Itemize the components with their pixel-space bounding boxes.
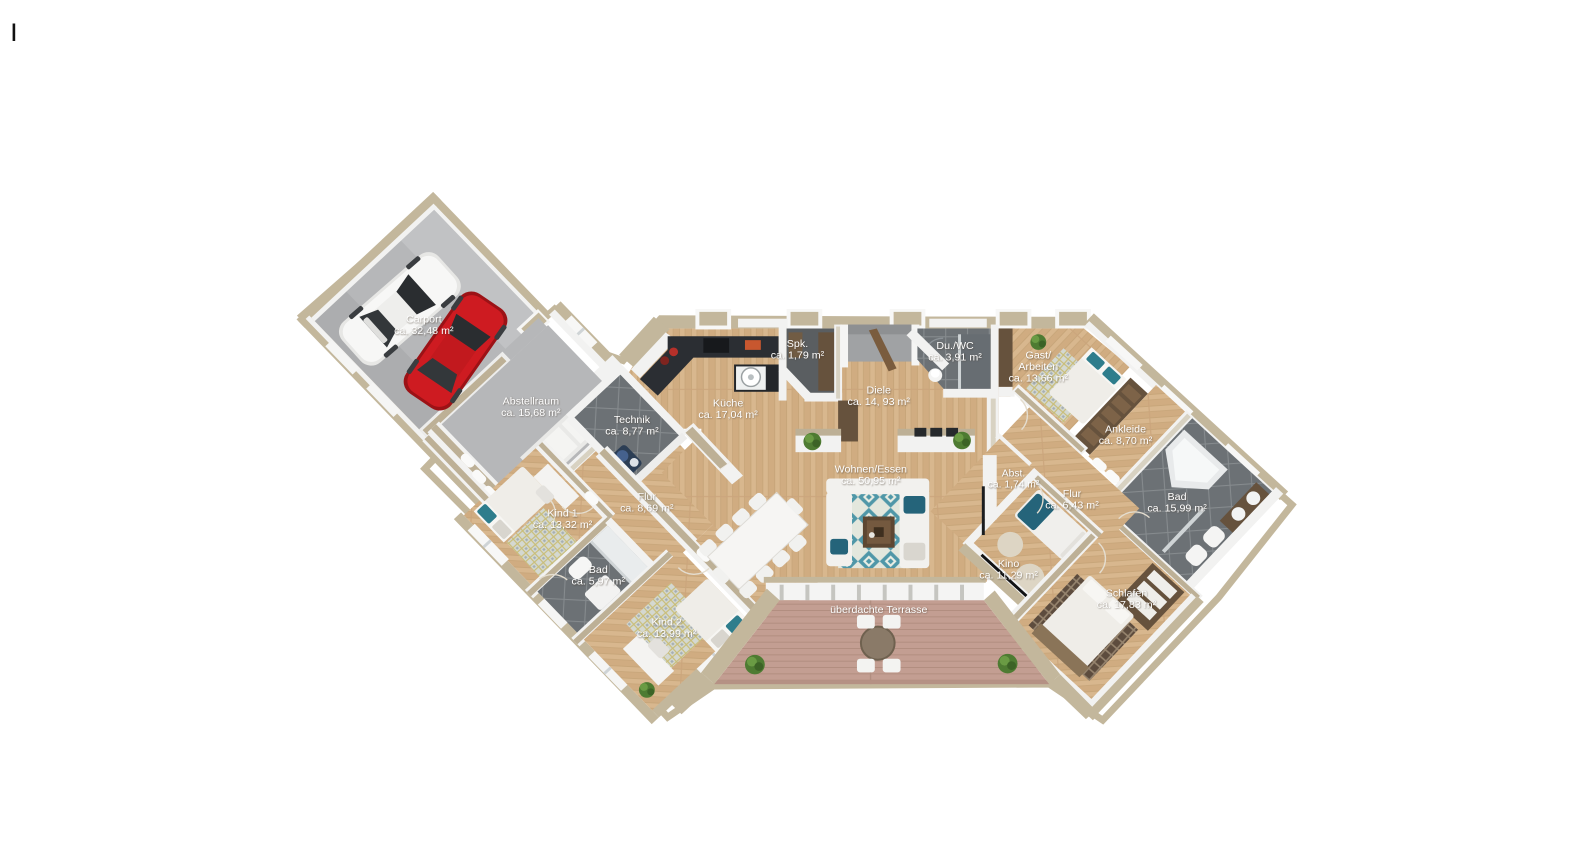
svg-text:überdachte Terrasse: überdachte Terrasse xyxy=(830,604,927,616)
svg-text:Ankleideca. 8,70 m²: Ankleideca. 8,70 m² xyxy=(1099,424,1153,447)
svg-text:Abstellraumca. 15,68 m²: Abstellraumca. 15,68 m² xyxy=(501,395,561,418)
svg-text:Wohnen/Essenca. 50,95 m²: Wohnen/Essenca. 50,95 m² xyxy=(835,464,907,487)
